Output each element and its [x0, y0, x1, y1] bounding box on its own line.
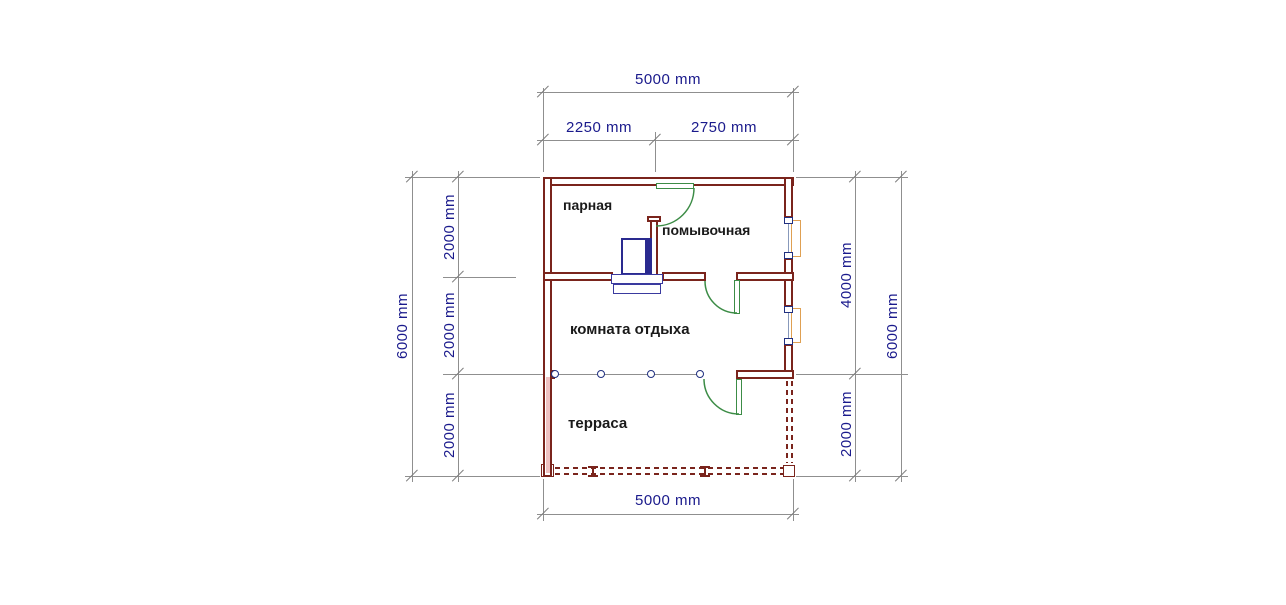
ext-line	[543, 88, 544, 172]
room-label-lounge: комната отдыха	[570, 321, 690, 338]
window-2-jamb-top	[784, 306, 793, 313]
wall-middle-seg-3	[736, 272, 794, 281]
dim-line-top-total	[537, 92, 799, 93]
wall-partition-cap	[647, 216, 661, 222]
terrace-corner-post-right	[783, 465, 795, 477]
wall-terrace-right-seg	[736, 370, 794, 379]
colonnade-post	[647, 370, 655, 378]
dim-text-top-left: 2250 mm	[549, 119, 649, 136]
wall-middle-seg-1	[543, 272, 613, 281]
dim-text-top-right: 2750 mm	[674, 119, 774, 136]
window-2-jamb-bottom	[784, 338, 793, 345]
ext-line	[405, 177, 540, 178]
dim-line-right-total	[901, 171, 902, 482]
dim-line-left-segments	[458, 171, 459, 482]
terrace-post-beam	[700, 475, 710, 477]
terrace-edge-right-inner	[786, 381, 788, 463]
room-label-terrace: терраса	[568, 415, 627, 432]
dim-line-top-split	[537, 140, 799, 141]
dim-line-left-total	[412, 171, 413, 482]
dim-text-top-total: 5000 mm	[618, 71, 718, 88]
dim-text-right-lower: 2000 mm	[838, 374, 854, 474]
window-1-jamb-bottom	[784, 252, 793, 259]
wall-middle-seg-2	[662, 272, 706, 281]
dim-text-left-seg-1: 2000 mm	[441, 177, 457, 277]
wall-right-middle	[784, 258, 793, 307]
floor-plan-canvas: 5000 mm 2250 mm 2750 mm 5000 mm 6000 mm …	[0, 0, 1286, 605]
colonnade-post	[551, 370, 559, 378]
wall-left-terrace-fill	[546, 377, 550, 473]
dim-text-bottom-total: 5000 mm	[618, 492, 718, 509]
window-2-glazing	[788, 313, 789, 338]
stove-hearth-plate-lower	[613, 284, 661, 294]
terrace-post-beam	[588, 475, 598, 477]
colonnade-post	[696, 370, 704, 378]
door-arc-terrace	[704, 379, 739, 414]
door-leaf-steam	[656, 183, 694, 189]
wall-right-upper	[784, 177, 793, 218]
dim-line-bottom-total	[537, 514, 799, 515]
dim-text-right-upper: 4000 mm	[838, 225, 854, 325]
colonnade-post	[597, 370, 605, 378]
terrace-edge-right-outer	[791, 381, 793, 463]
door-leaf-washing	[734, 280, 740, 314]
ext-line	[793, 88, 794, 172]
window-1-glazing	[788, 224, 789, 252]
dim-text-left-seg-2: 2000 mm	[441, 275, 457, 375]
dim-text-left-seg-3: 2000 mm	[441, 375, 457, 475]
stove-firebox	[645, 240, 651, 273]
dim-line-right-segments	[855, 171, 856, 482]
stove-hearth-plate-upper	[611, 274, 663, 284]
ext-line	[405, 476, 540, 477]
room-label-steam: парная	[563, 197, 612, 213]
door-arc-washing	[705, 281, 737, 313]
colonnade-line	[552, 374, 703, 375]
dim-text-right-total: 6000 mm	[884, 276, 900, 376]
dim-text-left-total: 6000 mm	[394, 276, 410, 376]
window-1-jamb-top	[784, 217, 793, 224]
room-label-washing: помывочная	[662, 222, 750, 238]
door-arc-steam	[656, 188, 694, 226]
door-leaf-terrace	[736, 379, 742, 415]
